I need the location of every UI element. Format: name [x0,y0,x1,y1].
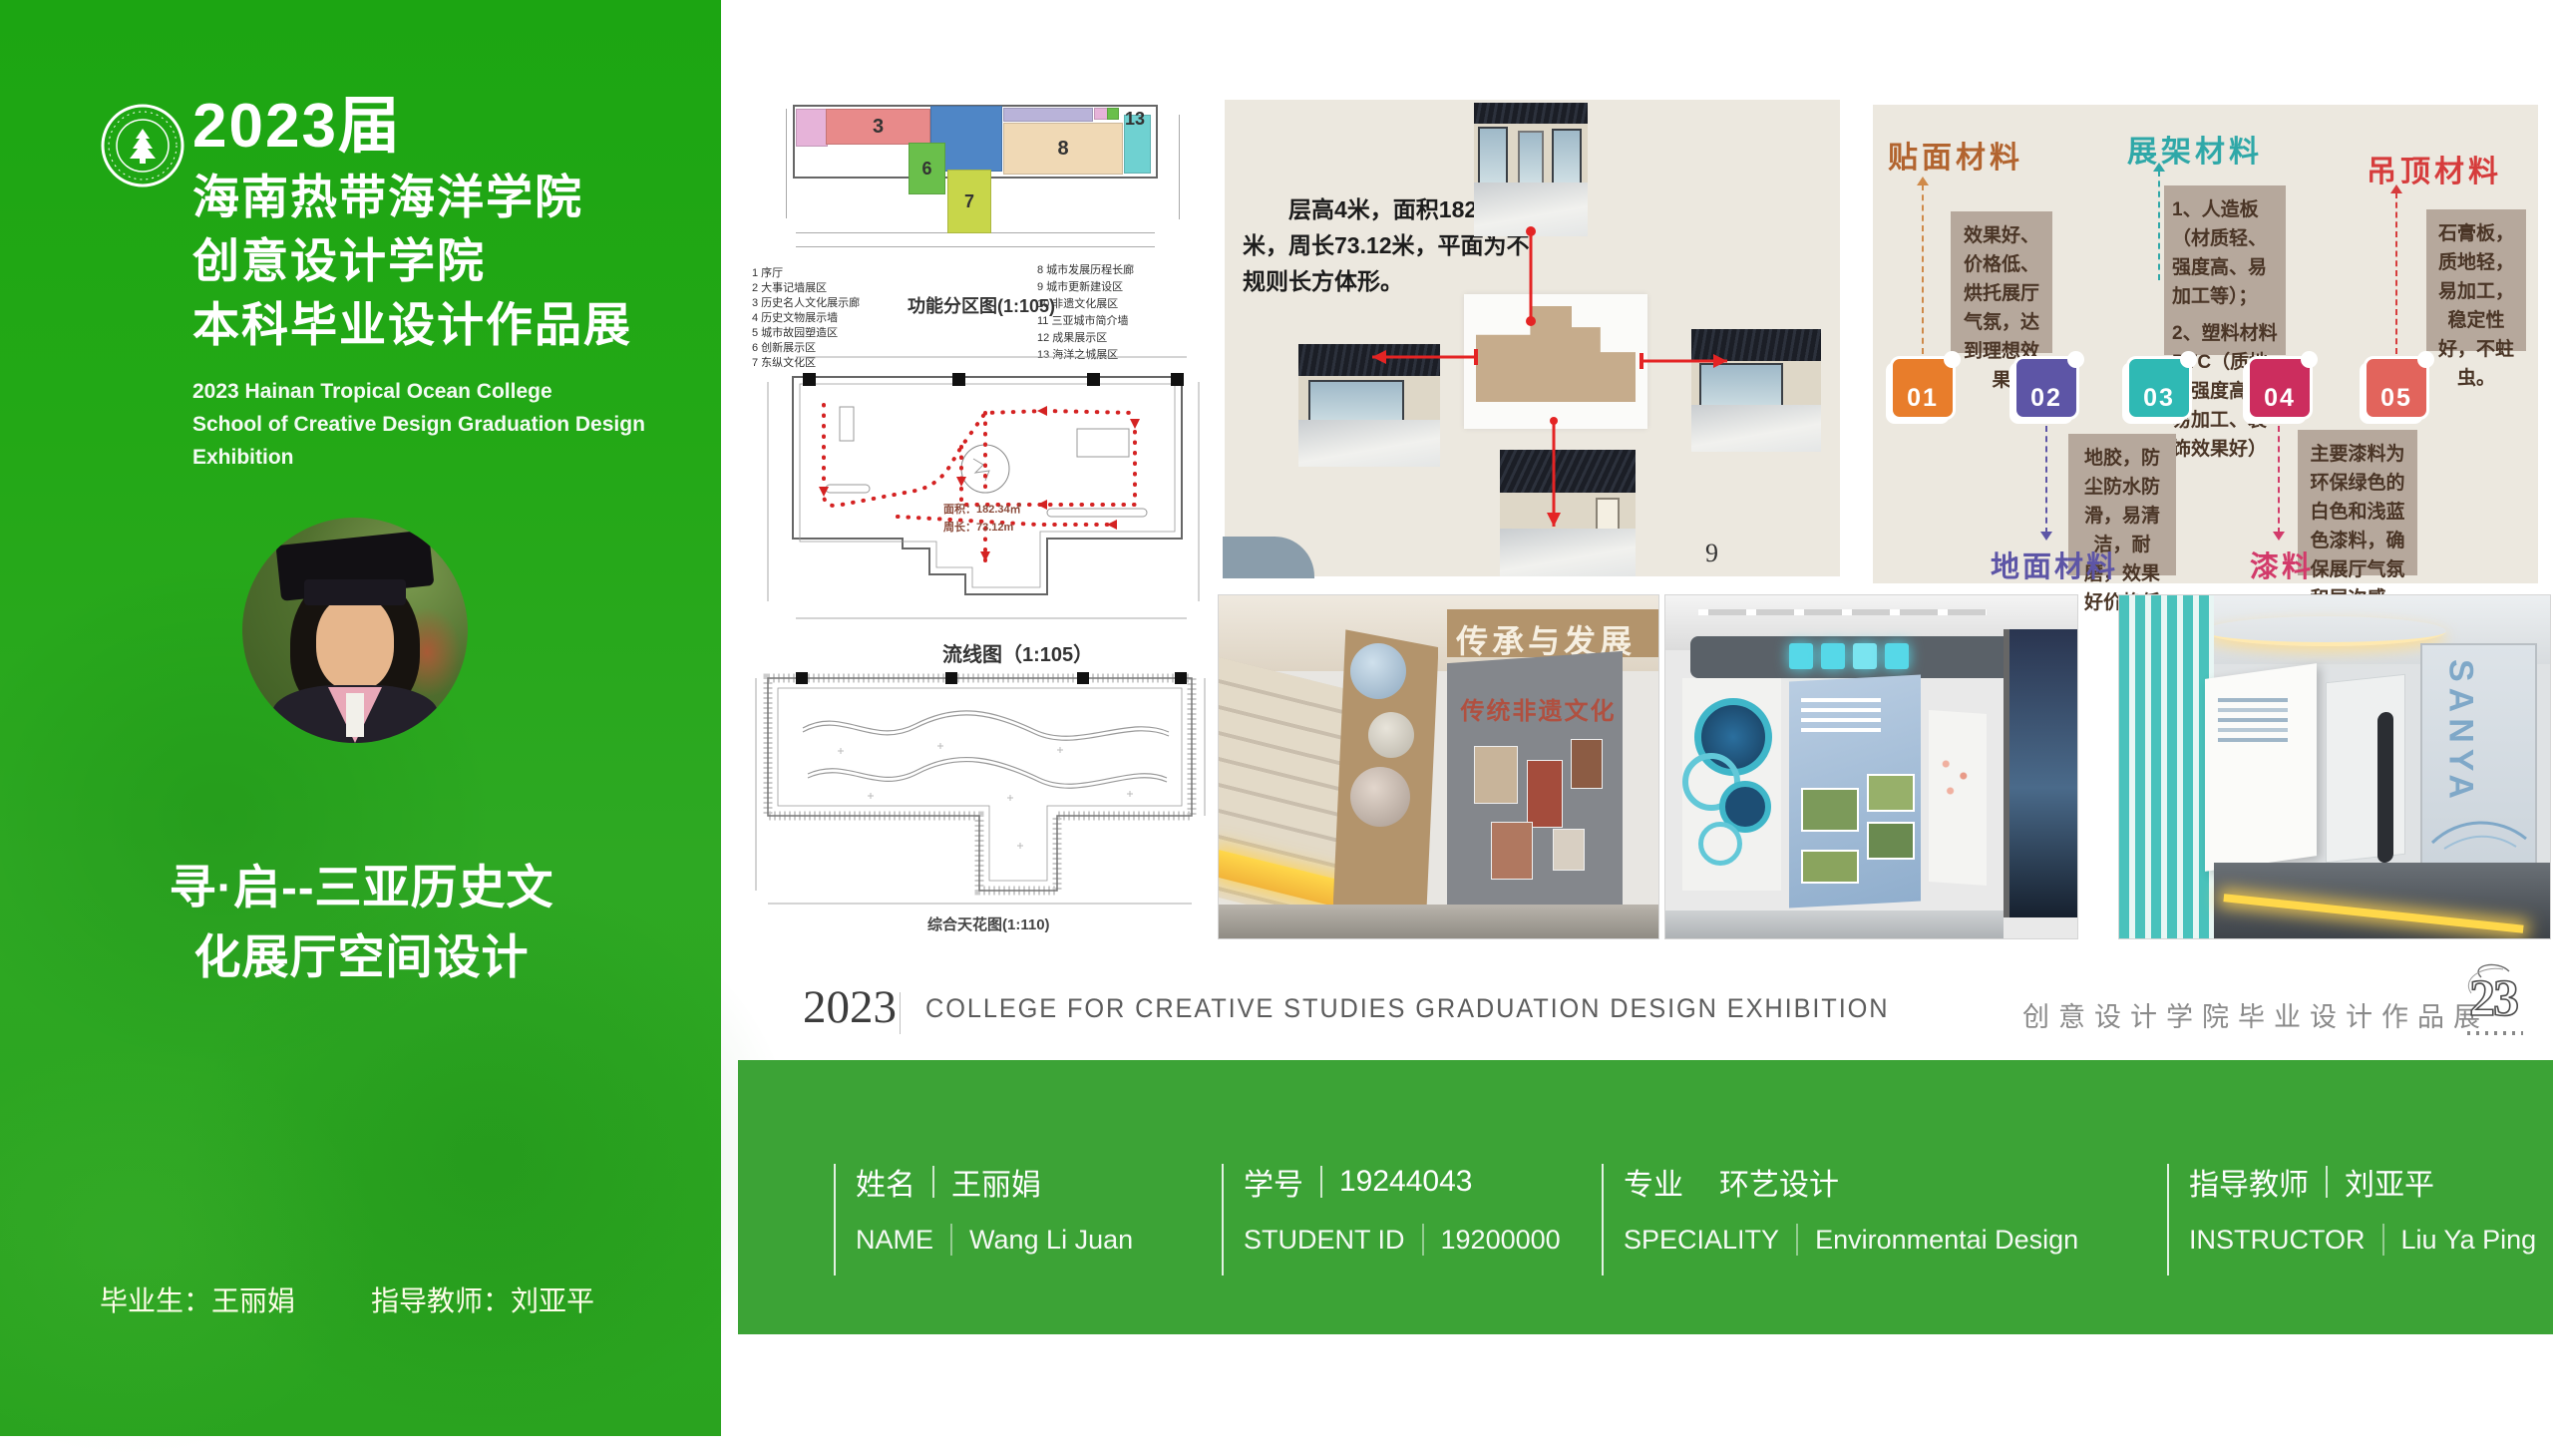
circulation-plan: 面积：182.34㎡ 周长：73.12m 流线图（1:105） [748,347,1217,666]
render-ocean-hall [1664,594,2078,939]
ceiling-note: 石膏板，质地轻，易加工，稳定性好，不蛀虫。 [2426,209,2526,351]
footer-field-name: 姓名 王丽娟 NAME Wang Li Juan [856,1160,1133,1260]
render-photo-tile [1867,822,1915,860]
arrowhead-down [2273,532,2285,541]
material-card-05: 05 [2364,356,2429,420]
field-label-cn: 姓名 [856,1160,915,1204]
field-value-cn: 环艺设计 [1719,1160,1839,1204]
legend-item: 3 历史名人文化展示廊 [752,296,921,311]
college-seal-icon [100,103,185,188]
zone-block-pink [796,109,828,147]
credits-line: 毕业生：王丽娟 指导教师：刘亚平 [100,1279,658,1319]
arrow-up-veneer [1922,184,1924,354]
ceiling-plan: 综合天花图(1:110) [748,666,1217,935]
render-exhibit-frame [1553,829,1585,871]
legend-item: 8 城市发展历程长廊 [1037,262,1217,279]
legend-item: 4 历史文物展示墙 [752,311,921,326]
render-info-panel [2205,663,2317,871]
render-sanya-corridor: SANYA POOL PARTY [2118,594,2551,939]
english-exhibition-line: School of Creative Design Graduation Des… [192,408,711,474]
field-label-en: NAME [856,1225,933,1256]
field-label-cn: 学号 [1244,1160,1303,1204]
year-title: 2023届 [192,88,711,166]
render-floor [1665,910,2004,938]
sidebar-panel: 2023届 海南热带海洋学院 创意设计学院 本科毕业设计作品展 2023 Hai… [0,0,721,1436]
render-coral-decor [1933,746,1977,806]
field-label-cn: 指导教师 [2189,1160,2309,1204]
arrowhead-up [1917,177,1929,185]
dimension-line [1179,115,1180,219]
material-card-01: 01 [1890,356,1956,420]
floor-material-header: 地面材料 [1991,544,2118,585]
banner-divider [900,992,901,1034]
exhibition-name: 本科毕业设计作品展 [192,293,711,357]
render-info-panel [2326,673,2405,862]
anniversary-23-logo: 23 [2451,965,2537,1041]
material-card-02: 02 [2013,356,2079,420]
english-college-line: 2023 Hainan Tropical Ocean College [192,375,711,408]
logo-dots [2467,1031,2523,1035]
field-value-en: Liu Ya Ping [2401,1225,2537,1256]
render-ring [1698,822,1742,866]
render-exhibit-frame [1527,760,1563,828]
zone-block-8: 8 [1003,123,1123,175]
veneer-material-header: 贴面材料 [1888,133,2023,177]
materials-analysis-panel: 贴面材料 展架材料 吊顶材料 效果好、价格低、烘托展厅气氛，达到理想效果 1、人… [1873,105,2538,583]
banner-english-title: COLLEGE FOR CREATIVE STUDIES GRADUATION … [925,993,1889,1024]
material-card-03: 03 [2126,356,2192,420]
arrow-up-shelf [2158,171,2160,280]
render-person-silhouette [2377,711,2393,864]
field-value-en: 19200000 [1441,1225,1561,1256]
render-caption-sub: 传统非遗文化 [1461,691,1617,726]
paint-material-header: 漆料 [2250,544,2314,585]
arrowhead-up [2153,163,2165,172]
sanya-sign-text: SANYA [2440,659,2479,809]
project-title-line1: 寻·启--三亚历史文 [35,853,688,922]
shelf-note-line1: 1、人造板（材质轻、强度高、易加工等）； [2172,195,2278,311]
legend-item: 11 三亚城市简介墙 [1037,313,1217,330]
zone-small-green [1107,108,1119,120]
render-exhibit-frame [1491,822,1533,880]
render-heritage-hall: 传承与发展 传统非遗文化 [1218,594,1659,939]
render-exhibit-frame [1571,739,1603,789]
zone-label-13: 13 [1125,109,1145,130]
field-label-en: STUDENT ID [1244,1225,1405,1256]
render-teal-slats [2119,595,2214,938]
field-label-en: INSTRUCTOR [2189,1225,2366,1256]
project-title-line2: 化展厅空间设计 [35,922,688,992]
legend-item: 1 序厅 [752,266,921,281]
student-info-footer: 姓名 王丽娟 NAME Wang Li Juan 学号 19244043 STU… [738,1060,2553,1334]
render-circle-photo [1368,712,1414,758]
field-value-cn: 王丽娟 [951,1160,1041,1204]
legend-item: 10 非遗文化展区 [1037,296,1217,313]
render-photo-tile [1801,788,1859,832]
banner-year: 2023 [803,980,897,1034]
field-value-en: Wang Li Juan [969,1225,1133,1256]
legend-item: 2 大事记墙展区 [752,281,921,296]
render-spotlights [1698,609,1987,615]
svg-text:周长：73.12m: 周长：73.12m [943,520,1014,534]
arrow-down-floor [2045,426,2047,534]
footer-field-student-id: 学号 19244043 STUDENT ID 19200000 [1244,1160,1561,1260]
zone-block-3: 3 [826,109,930,145]
footer-field-speciality: 专业 环艺设计 SPECIALITY Environmentai Design [1624,1160,2078,1260]
zoning-plan-title: 功能分区图(1:105) [908,292,1055,318]
render-exhibit-frame [1474,746,1518,804]
legend-item: 5 城市故园塑造区 [752,326,921,341]
school-name: 海南热带海洋学院 [192,166,711,229]
graduate-name-label: 毕业生：王丽娟 [100,1279,295,1319]
field-value-cn: 19244043 [1339,1165,1472,1199]
render-text-lines [2218,698,2288,702]
field-label-en: SPECIALITY [1624,1225,1779,1256]
render-circle-photo [1350,767,1410,827]
zone-block-6: 6 [909,143,945,194]
site-analysis-panel: 层高4米，面积182.34平米，周长73.12米，平面为不规则长方体形。 [1225,100,1840,576]
wave-logo [2424,809,2534,859]
exhibition-title-block: 2023届 海南热带海洋学院 创意设计学院 本科毕业设计作品展 2023 Hai… [192,88,711,474]
render-floor [1219,905,1658,938]
zone-small-pink [1094,108,1108,120]
render-ceiling-light-curve [2205,616,2446,646]
college-name: 创意设计学院 [192,229,711,293]
render-photo-tile [1801,850,1859,884]
veneer-note: 效果好、价格低、烘托展厅气氛，达到理想效果 [1951,211,2052,353]
banner-chinese-title: 创意设计学院毕业设计作品展 [2022,995,2489,1034]
render-text-lines [1801,698,1881,702]
instructor-name-label: 指导教师：刘亚平 [371,1279,594,1319]
zone-strip-lavender [1003,108,1093,122]
material-card-04: 04 [2247,356,2313,420]
field-value-cn: 刘亚平 [2345,1160,2434,1204]
field-label-cn: 专业 [1624,1160,1683,1204]
svg-text:面积：182.34㎡: 面积：182.34㎡ [943,502,1021,516]
render-photo-tile [1867,774,1915,812]
shelf-material-header: 展架材料 [2127,127,2263,171]
dimension-line [796,246,1155,247]
footer-field-instructor: 指导教师 刘亚平 INSTRUCTOR Liu Ya Ping [2189,1160,2536,1260]
arrowhead-down [2040,532,2052,541]
legend-item: 9 城市更新建设区 [1037,279,1217,296]
page-number: 9 [1705,539,1718,568]
shelf-note: 1、人造板（材质轻、强度高、易加工等）； 2、塑料材料PVC（质地轻强度高、易加… [2164,185,2286,355]
legend-item: 12 成果展示区 [1037,330,1217,347]
dimension-line [786,109,787,218]
red-connector-lines [1225,100,1840,576]
project-title: 寻·启--三亚历史文 化展厅空间设计 [35,853,688,992]
graduate-photo-avatar [242,518,468,743]
field-value-en: Environmentai Design [1815,1225,2078,1256]
arrowhead-up [2390,184,2402,193]
render-window-night [2004,629,2078,917]
ceiling-material-header: 吊顶材料 [2367,147,2502,190]
arrow-up-ceiling [2395,192,2397,354]
ceiling-plan-title: 综合天花图(1:110) [927,913,1050,934]
circulation-plan-title: 流线图（1:105） [942,638,1093,667]
render-glow-sign [1789,643,1909,669]
arrow-down-paint [2278,426,2280,534]
paint-note: 主要漆料为环保绿色的白色和浅蓝色漆料，确保展厅气氛和层次感， [2298,430,2417,575]
zone-block-7: 7 [947,170,991,233]
